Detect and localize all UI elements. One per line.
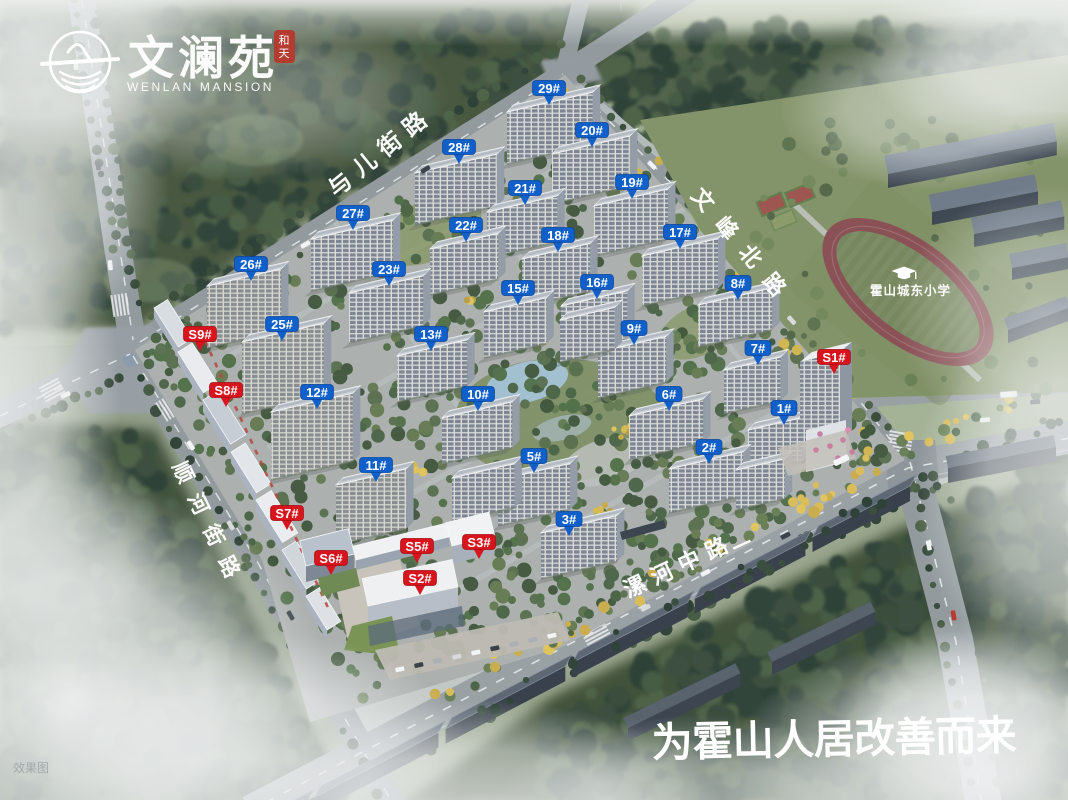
svg-text:WENLAN MANSION: WENLAN MANSION — [127, 80, 274, 94]
svg-text:S8#: S8# — [214, 383, 238, 398]
svg-text:11#: 11# — [366, 458, 388, 473]
svg-text:10#: 10# — [467, 387, 489, 402]
svg-text:天: 天 — [279, 48, 290, 60]
svg-text:17#: 17# — [669, 225, 691, 240]
svg-text:23#: 23# — [378, 262, 400, 277]
svg-text:S5#: S5# — [405, 539, 429, 554]
svg-text:16#: 16# — [586, 275, 608, 290]
svg-text:26#: 26# — [240, 257, 262, 272]
svg-text:21#: 21# — [514, 181, 536, 196]
svg-text:为霍山人居改善而来: 为霍山人居改善而来 — [651, 712, 1017, 766]
svg-text:25#: 25# — [271, 317, 293, 332]
svg-text:8#: 8# — [731, 276, 746, 291]
svg-text:效果图: 效果图 — [13, 760, 49, 775]
svg-text:19#: 19# — [621, 175, 643, 190]
svg-text:S7#: S7# — [275, 506, 299, 521]
svg-text:S9#: S9# — [188, 327, 212, 342]
svg-text:1#: 1# — [777, 401, 792, 416]
svg-text:18#: 18# — [547, 228, 569, 243]
svg-text:22#: 22# — [455, 218, 477, 233]
svg-text:6#: 6# — [662, 387, 677, 402]
svg-text:霍山城东小学: 霍山城东小学 — [870, 283, 951, 298]
svg-text:S2#: S2# — [408, 571, 432, 586]
svg-text:9#: 9# — [627, 321, 642, 336]
svg-text:12#: 12# — [306, 385, 328, 400]
svg-text:28#: 28# — [448, 140, 470, 155]
svg-text:7#: 7# — [751, 341, 766, 356]
svg-text:13#: 13# — [420, 327, 442, 342]
svg-text:S3#: S3# — [467, 535, 491, 550]
svg-text:20#: 20# — [581, 123, 603, 138]
svg-text:29#: 29# — [538, 81, 560, 96]
svg-text:S1#: S1# — [822, 350, 846, 365]
svg-text:15#: 15# — [507, 281, 529, 296]
svg-text:S6#: S6# — [319, 551, 343, 566]
svg-text:5#: 5# — [527, 449, 542, 464]
svg-text:3#: 3# — [562, 512, 577, 527]
svg-text:文澜苑: 文澜苑 — [128, 33, 278, 84]
svg-text:和: 和 — [279, 34, 290, 47]
svg-text:2#: 2# — [702, 440, 717, 455]
svg-text:27#: 27# — [342, 206, 364, 221]
